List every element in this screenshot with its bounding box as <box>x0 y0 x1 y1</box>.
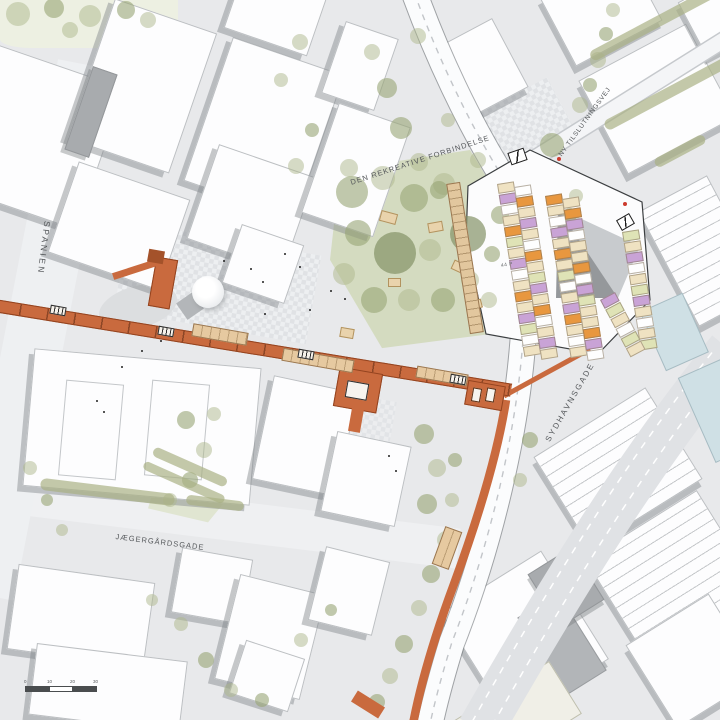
tree <box>288 158 304 174</box>
tree <box>325 604 337 616</box>
tree <box>41 494 53 506</box>
scale-bar-tick: 10 <box>47 679 52 684</box>
tree <box>198 652 214 668</box>
site-plan-map: SPANIEN DEN REKREATIVE FORBINDELSE NY TI… <box>0 0 720 720</box>
tree <box>340 159 358 177</box>
tree <box>374 232 416 274</box>
tree <box>400 184 428 212</box>
tree <box>513 473 527 487</box>
tree <box>274 73 288 87</box>
tree <box>146 594 158 606</box>
tree <box>117 1 135 19</box>
park-pavilion <box>388 278 401 287</box>
tree <box>431 288 455 312</box>
tree <box>445 493 459 507</box>
scale-bar: 0102030 <box>25 686 97 690</box>
tree <box>224 683 238 697</box>
tree <box>207 407 221 421</box>
tree <box>414 424 434 444</box>
tree <box>140 12 156 28</box>
tree <box>470 152 486 168</box>
tree <box>382 668 398 684</box>
tree <box>377 78 397 98</box>
tree <box>422 565 440 583</box>
tree <box>23 461 37 475</box>
tree <box>361 287 387 313</box>
tree <box>364 44 380 60</box>
tree <box>56 524 68 536</box>
tree <box>411 600 427 616</box>
tree <box>292 34 308 50</box>
walkway-tower-cap <box>147 249 165 265</box>
red-marker-dot <box>557 157 561 161</box>
tree <box>390 117 412 139</box>
tree <box>441 113 455 127</box>
parking-stall <box>540 347 558 360</box>
scale-bar-tick: 20 <box>70 679 75 684</box>
tree <box>294 633 308 647</box>
tree <box>6 2 30 26</box>
tree <box>255 693 269 707</box>
scale-bar-tick: 30 <box>93 679 98 684</box>
tree <box>522 432 538 448</box>
tree <box>333 263 355 285</box>
tree <box>572 97 588 113</box>
tower-east-roof <box>345 380 370 401</box>
scale-bar-segment <box>73 686 97 692</box>
tree <box>79 5 101 27</box>
tree <box>398 289 420 311</box>
scale-bar-segment <box>25 686 49 692</box>
parking-stall <box>586 348 604 361</box>
tree <box>305 123 319 137</box>
tree <box>484 246 500 262</box>
tree <box>410 28 426 44</box>
tree <box>174 617 188 631</box>
tree <box>177 411 195 429</box>
tree <box>606 3 620 17</box>
tree <box>417 494 437 514</box>
dome-canopy <box>192 276 224 308</box>
tree <box>448 453 462 467</box>
tree <box>583 78 597 92</box>
scale-bar-tick: 0 <box>24 679 27 684</box>
tree <box>419 239 441 261</box>
tree <box>62 22 78 38</box>
tree <box>481 292 497 308</box>
tree <box>345 220 371 246</box>
scale-bar-segment <box>49 686 73 692</box>
red-marker-dot <box>623 202 627 206</box>
tree <box>395 635 413 653</box>
tree <box>428 459 446 477</box>
tree <box>196 442 212 458</box>
